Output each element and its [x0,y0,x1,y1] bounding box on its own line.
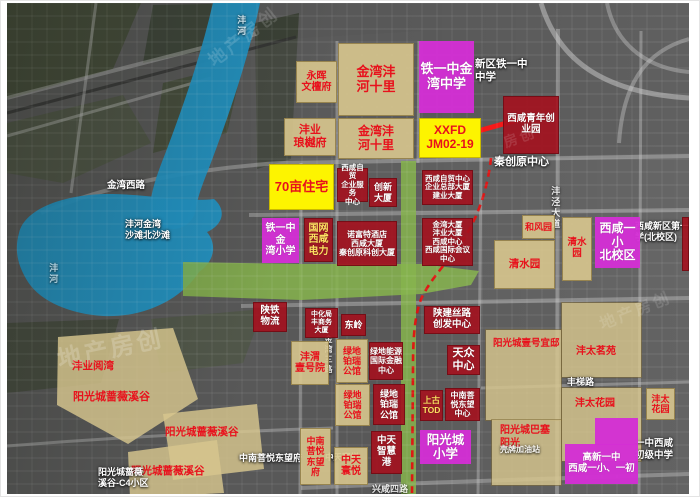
maptext-qinchuangyuan-center: 秦创原中心 [494,156,549,170]
parcel-xixian-yixiao-north-campus: 西咸一小 北校区 [595,217,640,268]
parcel-fengye-langyuefu: 沣业 琅樾府 [284,118,336,156]
parcel-guowang-xixian-power: 国网 西咸 电力 [304,218,333,262]
parcel-tianzhong-center: 天众 中心 [447,345,480,375]
parcel-tieyizhong-jinwan-primary: 铁一中金 湾小学 [262,218,299,263]
label-fengye-yuewan: 沣业阅湾 [72,360,114,373]
parcel-tieyizhong-jinwan-middle-school: 铁一中金 湾中学 [419,41,474,113]
label-fengtai-mingyuan: 沣太茗苑 [576,346,616,359]
maptext-river-fenghe: 沣河 [235,15,246,37]
parcel-shaantie-logistics: 陕铁 物流 [253,302,287,332]
parcel-fengwei-yihaoyuan: 沣渭 壹号院 [291,341,329,385]
parcel-lvdi-energy-center: 绿地能源 国际金融 中心 [369,342,403,380]
parcel-zhongtian-huanyue: 中天 寰悦 [334,447,368,485]
parcel-xxfd-jm02-19: XXFD JM02-19 [419,118,481,158]
image-border-top [1,1,700,3]
label-yihao-yidi: 阳光城壹号宜邸 [493,338,560,350]
parcel-hefengyuan: 和风园 [522,215,555,239]
parcel-qingshuiyuan-west: 清水园 [494,240,555,289]
maptext-fenghe-jinwan-beach: 沣河金湾 沙滩北沙滩 [125,219,170,242]
lake [17,194,222,316]
parcel-jinwan-fenghe-shili-north: 金湾沣 河十里 [338,43,414,116]
greenway-strip [401,161,416,494]
parcel-yangguangcheng-primary: 阳光城 小学 [420,430,471,464]
label-qiangwei-xigu-1: 阳光城蔷薇溪谷 [73,391,150,405]
parcel-zhongtian-zhihuigang: 中天 智慧 港 [371,431,402,474]
parcel-chuangxin-tower: 创新 大厦 [369,178,397,207]
parcel-right-edge-sliver [682,217,689,271]
parcel-gaoxin-yizhong-school: 高新一中 西咸一小、一初 [565,444,638,484]
maptext-jinwan-xilu-road: 金湾西路 [107,180,145,192]
parcel-jinwan-tower-block: 金湾大厦 沣业大厦 西咸中心 西咸国际会议中心 [422,218,473,266]
parcel-lvdi-borui-2: 绿地 铂瑞 公馆 [335,384,370,426]
parcel-qingshuiyuan-east: 清水园 [562,217,592,281]
maptext-xinqu-tieyizhong: 新区铁一中 中学 [475,58,528,84]
parcel-yonghui-wentanfu: 永晖 文檀府 [296,61,337,103]
maptext-fengti-road: 丰梯路 [567,377,594,388]
parcel-shaanjian-silu-center: 陕建丝路 创发中心 [424,306,480,334]
image-border-right [689,1,700,497]
maptext-lake-fenghe: 沣河 [47,263,58,285]
label-fengtai-huayuan: 沣太花园 [575,398,615,411]
parcel-zimao-center: 西咸自贸中心 企业总部大厦 建业大厦 [422,170,473,205]
image-border-left [1,1,7,497]
parcel-zhongnan-puyue-dongwangfu: 中南 菩悦 东望 府 [300,428,331,485]
map-screenshot: 阳光城壹号宜邸沣太茗苑沣太花园阳光城巴塞 阳光沣业阅湾阳光城蔷薇溪谷阳光城蔷薇溪… [0,0,700,497]
satellite-map: 阳光城壹号宜邸沣太茗苑沣太花园阳光城巴塞 阳光沣业阅湾阳光城蔷薇溪谷阳光城蔷薇溪… [1,1,700,497]
parcel-shanggu-tod: 上古 TOD [420,390,443,421]
parcel-novotel-block: 诺富特酒店 西咸大厦 秦创原科创大厦 [337,221,397,266]
parcel-jinwan-fenghe-shili-south: 金湾沣 河十里 [338,118,414,159]
parcel-lvdi-borui-1: 绿地 铂瑞 公馆 [336,339,368,383]
label-qiangwei-xigu-2: 阳光城蔷薇溪谷 [165,426,239,439]
parcel-zhongnan-puyue-center: 中南菩 悦东望 中心 [445,388,480,421]
maptext-yizhong-xixian-junior: 一中西咸 初级中学 [635,438,673,462]
parcel-gaoxin-school-top [595,418,638,445]
zone-fengtai-mingyuan-parcel [562,303,641,377]
parcel-zimao-service-center: 西咸自贸 企业服务 中心 [337,168,368,202]
parcel-70mu-residential: 70亩住宅 [269,164,334,210]
parcel-xixian-youth-park: 西咸青年创 业园 [503,96,559,154]
maptext-qiangwei-c4: 阳光城蔷薇 溪谷-C4小区 [98,467,149,490]
parcel-fengtai-huayuan-east: 沣太 花园 [646,388,675,420]
maptext-zhongnan-dongwangfu-bg: 中南菩悦东望府 [239,453,302,464]
parcel-zhonghuaju-tower: 中化局 丰商务 大厦 [305,308,338,338]
parcel-dongling: 东岭 [341,314,366,336]
parcel-lvdi-borui-3: 绿地 铂瑞 公馆 [373,384,405,425]
maptext-shell-station: 壳牌加油站 [500,445,540,455]
